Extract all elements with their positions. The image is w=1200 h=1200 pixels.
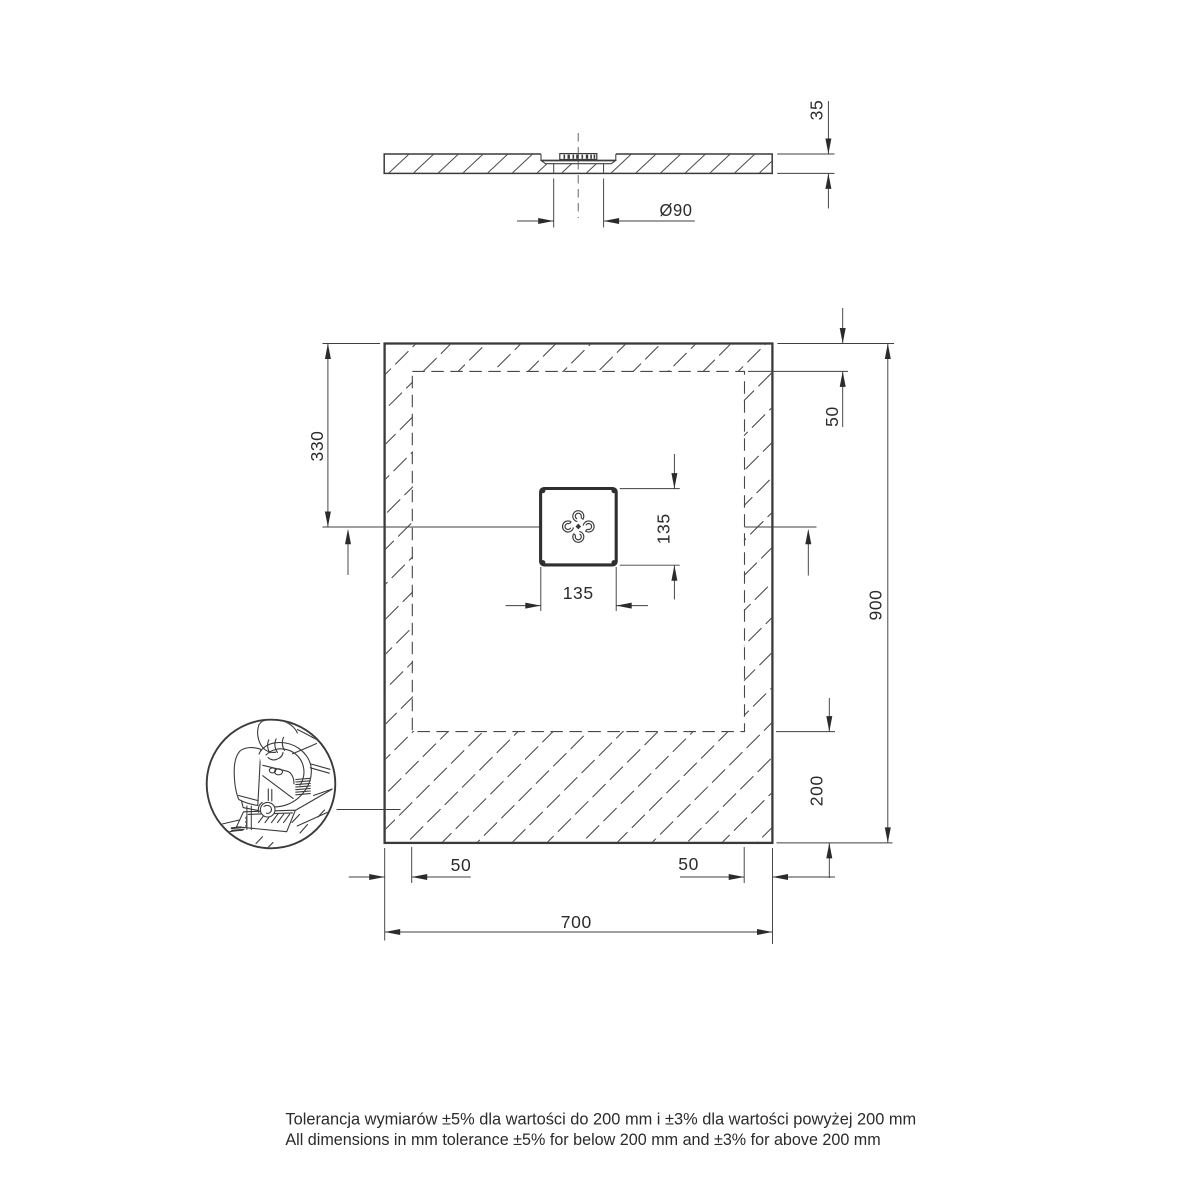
svg-text:135: 135 bbox=[653, 513, 673, 544]
svg-text:35: 35 bbox=[807, 100, 827, 121]
svg-text:200: 200 bbox=[807, 775, 827, 806]
svg-text:50: 50 bbox=[822, 406, 842, 427]
svg-text:All dimensions in mm tolerance: All dimensions in mm tolerance ±5% for b… bbox=[285, 1131, 880, 1149]
svg-text:135: 135 bbox=[563, 583, 594, 603]
svg-text:330: 330 bbox=[307, 431, 327, 462]
svg-text:50: 50 bbox=[678, 854, 699, 874]
svg-text:Tolerancja wymiarów ±5% dla wa: Tolerancja wymiarów ±5% dla wartości do … bbox=[285, 1111, 916, 1129]
svg-text:900: 900 bbox=[866, 590, 886, 621]
svg-text:700: 700 bbox=[561, 912, 592, 932]
svg-text:Ø90: Ø90 bbox=[660, 200, 693, 220]
svg-text:50: 50 bbox=[451, 855, 472, 875]
